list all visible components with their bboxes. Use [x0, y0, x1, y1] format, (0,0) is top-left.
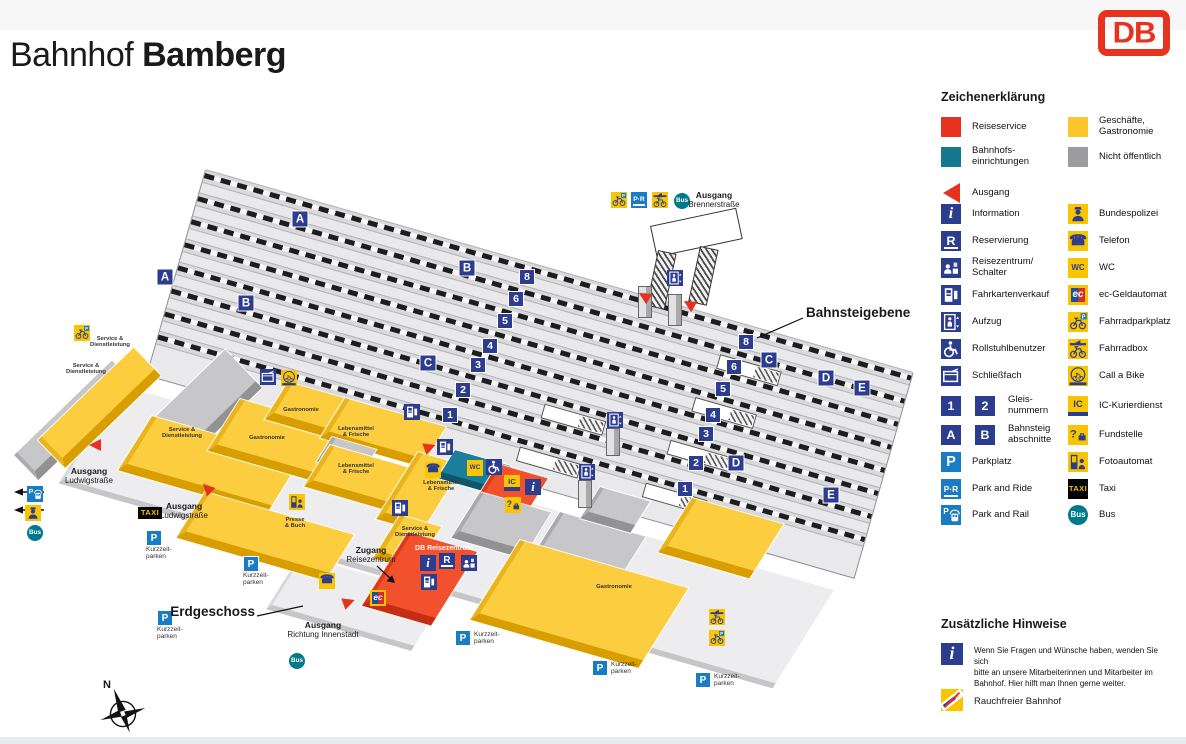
building-label: Lebensmittel& Frische: [338, 463, 374, 476]
ec-icon: ec: [1068, 285, 1088, 305]
rollstuhl-icon: [941, 339, 961, 359]
building-label: Presse& Buch: [285, 517, 305, 530]
track-number-1: 1: [442, 407, 458, 423]
elevator-tower: [606, 428, 620, 456]
p-icon: P: [941, 452, 961, 472]
elevator-tower: [668, 294, 682, 326]
platform-section-C: C: [761, 352, 778, 369]
notes-line: Bahnhof. Hier hilft man Ihnen gerne weit…: [974, 678, 1174, 689]
schalter-icon: [461, 555, 477, 571]
g2-icon: 2: [975, 396, 995, 416]
ec-icon: ec: [370, 590, 386, 606]
fund-icon: ?: [1068, 425, 1088, 445]
legend-label: WC: [1099, 263, 1115, 274]
legend-label: Aufzug: [972, 317, 1002, 328]
legend-label: Parkplatz: [972, 457, 1012, 468]
bikeP-icon: P: [1068, 312, 1088, 332]
platform-section-C: C: [420, 355, 437, 372]
taxi-icon: TAXI: [1068, 479, 1088, 499]
legend-label: Geschäfte,Gastronomie: [1099, 116, 1153, 138]
legend-label: Fotoautomat: [1099, 457, 1152, 468]
rauchfrei-icon: [941, 689, 963, 711]
bus-icon: Bus: [27, 525, 43, 541]
short-term-parking: PKurzzeit-parken: [695, 672, 740, 688]
g1-icon: 1: [941, 396, 961, 416]
station-map-page: Bahnhof Bamberg DB: [0, 0, 1186, 744]
svg-text:P: P: [720, 631, 723, 636]
callabike-icon: [281, 370, 297, 386]
svg-text:P: P: [622, 193, 625, 198]
parking-label: Kurzzeit-parken: [157, 626, 183, 641]
track-number-8: 8: [738, 334, 754, 350]
foto-icon: [289, 494, 305, 510]
info-icon: i: [420, 555, 436, 571]
svg-text:?: ?: [1070, 429, 1077, 441]
notes-smoke-label: Rauchfreier Bahnhof: [974, 696, 1061, 707]
aufzug-icon: [579, 464, 595, 480]
prail-icon: P: [27, 486, 43, 502]
platform-section-E: E: [823, 487, 840, 504]
sq_red-icon: [941, 117, 961, 137]
legend-label: Nicht öffentlich: [1099, 152, 1161, 163]
svg-text:P: P: [1082, 314, 1086, 320]
bikebox-icon: [652, 192, 668, 208]
bridge-ramp: [688, 246, 718, 306]
parking-label: Kurzzeit-parken: [611, 661, 637, 676]
short-term-parking: PKurzzeit-parken: [592, 660, 637, 676]
track-number-8: 8: [519, 269, 535, 285]
telefon-icon: ☎: [319, 573, 335, 589]
parking-icon: P: [455, 630, 471, 646]
ticket-icon: [941, 285, 961, 305]
gA-icon: A: [941, 425, 961, 445]
legend-label: Information: [972, 209, 1020, 220]
telefon-icon: ☎: [1068, 231, 1088, 251]
bikebox-icon: [1068, 339, 1088, 359]
legend-label: Reisezentrum/Schalter: [972, 257, 1033, 279]
db-logo-text: DB: [1113, 16, 1156, 50]
exit-arrow-icon: [89, 439, 101, 451]
legend-label: Fahrkartenverkauf: [972, 290, 1049, 301]
callabike-icon: [1068, 366, 1088, 386]
platform-section-A: A: [157, 269, 174, 286]
legend-label: Fahrradbox: [1099, 344, 1148, 355]
taxi-icon: TAXI: [138, 507, 162, 519]
pr-icon: P·R: [631, 192, 647, 208]
ticket-icon: [392, 500, 408, 516]
compass-north-label: N: [103, 679, 111, 691]
track-number-2: 2: [455, 382, 471, 398]
legend-label: Ausgang: [972, 188, 1010, 199]
map-label-ausgang: AusgangLudwigstraße: [160, 502, 208, 520]
parking-label: Kurzzeit-parken: [146, 546, 172, 561]
wc-icon: WC: [1068, 258, 1088, 278]
ticket-icon: [437, 439, 453, 455]
building-label: Lebensmittel& Frische: [338, 426, 374, 439]
notes-info-text: Wenn Sie Fragen und Wünsche haben, wende…: [974, 645, 1174, 689]
legend-label: Telefon: [1099, 236, 1130, 247]
bikeP-icon: P: [74, 325, 90, 341]
platform-section-A: A: [292, 211, 309, 228]
schalter-icon: [941, 258, 961, 278]
map-label-bahnsteigebene: Bahnsteigebene: [806, 305, 910, 320]
compass-rose: [92, 681, 151, 741]
legend-title: Zeichenerklärung: [941, 90, 1045, 104]
building-label: Gastronomie: [283, 407, 319, 413]
notes-title: Zusätzliche Hinweise: [941, 617, 1067, 631]
building-label: Lebensmittel& Frische: [423, 480, 459, 493]
wc-icon: WC: [467, 460, 483, 476]
platform-section-D: D: [818, 370, 835, 387]
info-icon: i: [941, 204, 961, 224]
rollstuhl-icon: [486, 459, 502, 475]
track-number-5: 5: [497, 313, 513, 329]
bikeP-icon: P: [611, 192, 627, 208]
ausgang-icon: [941, 183, 961, 203]
building-label: Service &Dienstleistung: [162, 427, 202, 440]
no-smoking-icon: [941, 689, 963, 711]
svg-text:P: P: [943, 506, 949, 516]
legend-label: Call a Bike: [1099, 371, 1144, 382]
bikebox-icon: [709, 609, 725, 625]
legend-label: Taxi: [1099, 484, 1116, 495]
legend-label: Bahnsteigabschnitte: [1008, 424, 1051, 446]
legend-label: Rollstuhlbenutzer: [972, 344, 1045, 355]
track-number-3: 3: [698, 426, 714, 442]
legend-label: IC-Kurierdienst: [1099, 401, 1162, 412]
building-label: Service &Dienstleistung: [90, 336, 130, 349]
aufzug-icon: [941, 312, 961, 332]
bus-icon: Bus: [1068, 505, 1088, 525]
pr-icon: P·R: [941, 479, 961, 499]
reserv-icon: R: [439, 553, 455, 569]
parking-icon: P: [146, 530, 162, 546]
building-label: DB Reisezentrum: [415, 545, 473, 553]
polizei-icon: [1068, 204, 1088, 224]
parking-label: Kurzzeit-parken: [243, 572, 269, 587]
parking-icon: P: [592, 660, 608, 676]
legend-label: Gleis-nummern: [1008, 395, 1048, 417]
telefon-icon: ☎: [425, 462, 441, 478]
ticket-icon: [404, 404, 420, 420]
legend-label: ec-Geldautomat: [1099, 290, 1167, 301]
foto-icon: [1068, 452, 1088, 472]
footbridge: [650, 208, 743, 258]
legend-label: Schließfach: [972, 371, 1022, 382]
parking-label: Kurzzeit-parken: [474, 631, 500, 646]
track-number-3: 3: [470, 357, 486, 373]
legend-label: Park and Rail: [972, 510, 1029, 521]
db-logo: DB: [1098, 10, 1170, 56]
svg-text:P: P: [29, 488, 34, 495]
track-number-1: 1: [677, 481, 693, 497]
short-term-parking: PKurzzeit-parken: [146, 530, 172, 561]
building-label: Service &Dienstleistung: [66, 363, 106, 376]
notes-line: bitte an unsere Mitarbeiterinnen und Mit…: [974, 667, 1174, 678]
track-number-6: 6: [726, 359, 742, 375]
legend-label: Park and Ride: [972, 484, 1032, 495]
building-label: Gastronomie: [596, 584, 632, 590]
sq_gray-icon: [1068, 147, 1088, 167]
svg-text:P: P: [85, 326, 88, 331]
prail-icon: P: [941, 505, 961, 525]
track-number-4: 4: [705, 407, 721, 423]
bus-icon: Bus: [289, 653, 305, 669]
track-number-4: 4: [482, 338, 498, 354]
fach-icon: [260, 369, 276, 385]
track-number-6: 6: [508, 291, 524, 307]
reserv-icon: R: [941, 231, 961, 251]
polizei-icon: [25, 505, 41, 521]
fund-icon: ?: [505, 497, 521, 513]
ticket-icon: [421, 574, 437, 590]
building-label: Gastronomie: [249, 435, 285, 441]
svg-text:?: ?: [507, 499, 512, 509]
short-term-parking: PKurzzeit-parken: [243, 556, 269, 587]
bikeP-icon: P: [709, 630, 725, 646]
elevator-tower: [578, 480, 592, 508]
notes-line: Wenn Sie Fragen und Wünsche haben, wende…: [974, 645, 1174, 667]
track-number-5: 5: [715, 381, 731, 397]
platform-section-B: B: [238, 295, 255, 312]
legend-label: Fundstelle: [1099, 430, 1143, 441]
track-number-2: 2: [688, 455, 704, 471]
platform-section-D: D: [728, 455, 745, 472]
legend-label: Reiseservice: [972, 122, 1026, 133]
map-label-erdgeschoss: Erdgeschoss: [170, 604, 255, 619]
gB-icon: B: [975, 425, 995, 445]
info-icon: i: [525, 479, 541, 495]
legend-label: Reservierung: [972, 236, 1029, 247]
map-label-ausgang: AusgangBrennerstraße: [688, 191, 739, 209]
map-label-ausgang: AusgangLudwigstraße: [65, 467, 113, 485]
aufzug-icon: [607, 412, 623, 428]
legend-label: Bundespolizei: [1099, 209, 1158, 220]
legend-label: Bahnhofs-einrichtungen: [972, 146, 1029, 168]
parking-icon: P: [243, 556, 259, 572]
parking-icon: P: [695, 672, 711, 688]
fach-icon: [941, 366, 961, 386]
legend-label: Bus: [1099, 510, 1115, 521]
sq_yellow-icon: [1068, 117, 1088, 137]
sq_teal-icon: [941, 147, 961, 167]
station-map: N 88665544332211AABBCCDDEEPP·RBusPWC☎☎IC…: [0, 0, 940, 744]
map-label-zugang: ZugangReisezentrum: [346, 546, 395, 564]
info-icon: i: [941, 643, 963, 665]
legend-label: Fahrradparkplatz: [1099, 317, 1171, 328]
map-label-ausgang: AusgangRichtung Innenstadt: [287, 621, 358, 639]
info-icon: i: [941, 643, 963, 665]
platform-section-E: E: [854, 380, 871, 397]
aufzug-icon: [667, 270, 683, 286]
icd-icon: IC: [504, 475, 520, 491]
icd-icon: IC: [1068, 396, 1088, 416]
short-term-parking: PKurzzeit-parken: [455, 630, 500, 646]
building-label: Service &Dienstleistung: [395, 526, 435, 539]
parking-label: Kurzzeit-parken: [714, 673, 740, 688]
platform-section-B: B: [459, 260, 476, 277]
